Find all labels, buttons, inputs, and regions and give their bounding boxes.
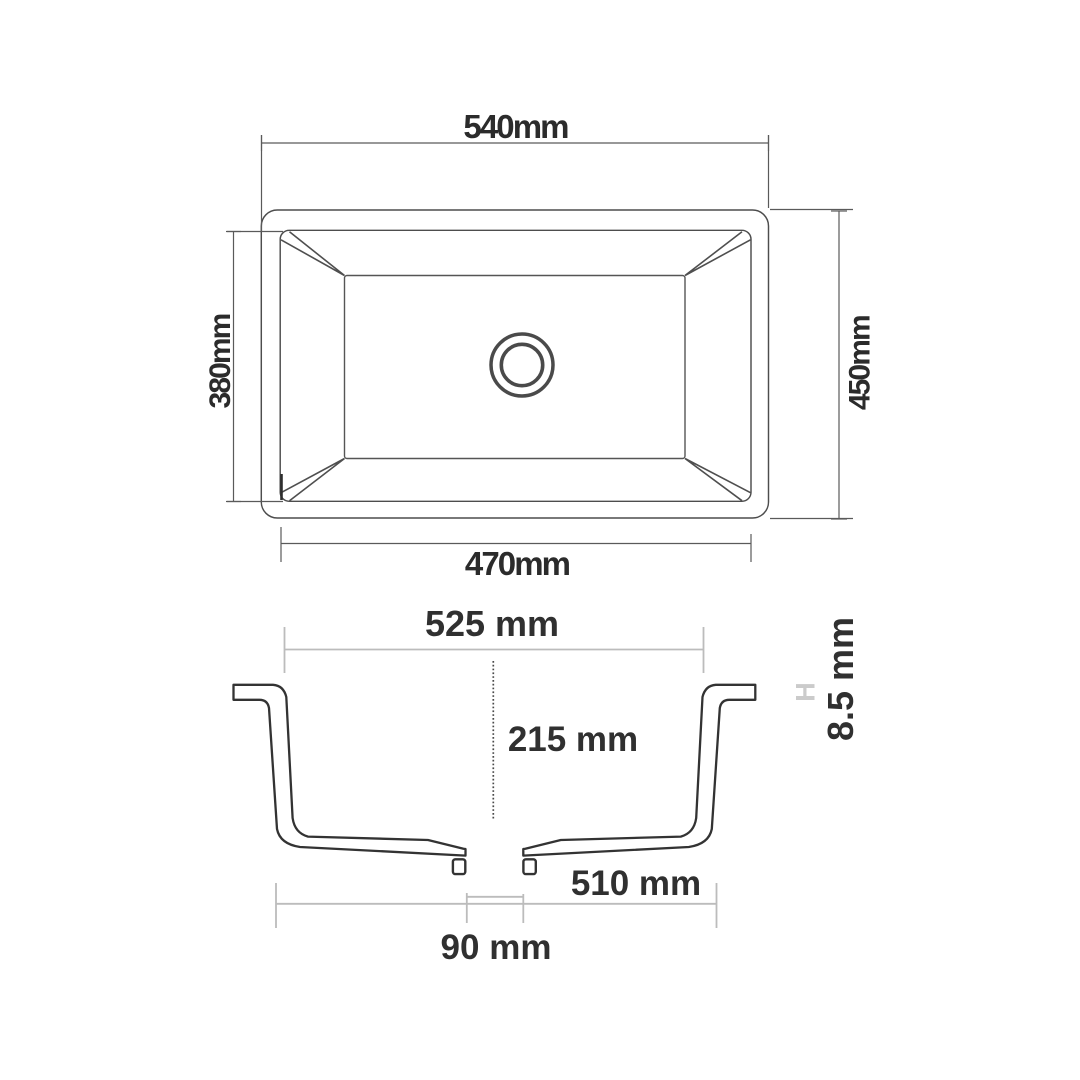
svg-text:525 mm: 525 mm: [425, 603, 559, 644]
svg-text:510 mm: 510 mm: [571, 864, 701, 903]
svg-text:380mm: 380mm: [204, 314, 237, 408]
svg-text:540mm: 540mm: [463, 108, 568, 145]
svg-text:470mm: 470mm: [465, 545, 570, 582]
svg-text:215 mm: 215 mm: [508, 720, 638, 759]
svg-text:450mm: 450mm: [843, 316, 876, 410]
svg-text:8.5 mm: 8.5 mm: [820, 617, 861, 741]
svg-text:H: H: [790, 682, 820, 702]
svg-text:90 mm: 90 mm: [441, 928, 552, 967]
